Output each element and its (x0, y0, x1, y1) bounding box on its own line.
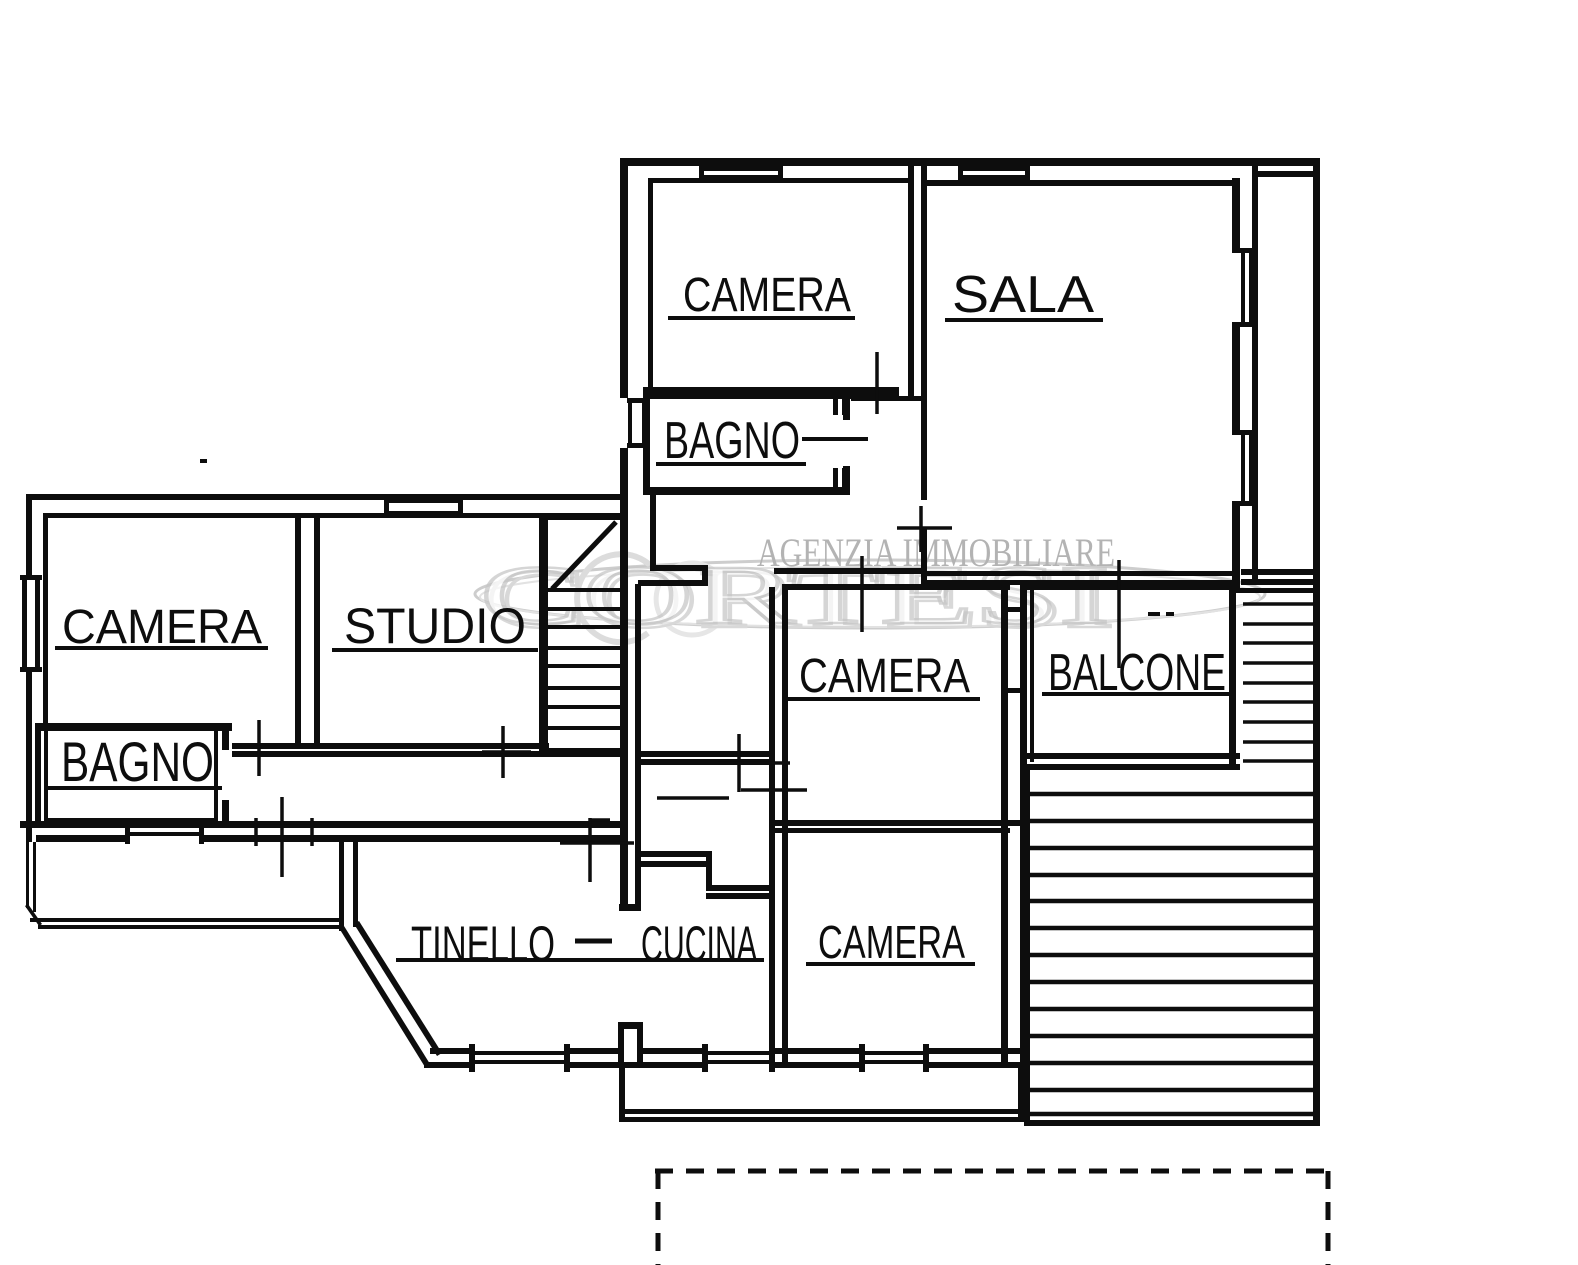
svg-text:CUCINA: CUCINA (641, 916, 757, 972)
svg-text:BAGNO: BAGNO (664, 412, 800, 470)
svg-text:CAMERA: CAMERA (799, 650, 970, 703)
svg-text:CAMERA: CAMERA (818, 916, 965, 968)
svg-text:TINELLO: TINELLO (411, 916, 555, 972)
svg-text:SALA: SALA (952, 266, 1094, 324)
svg-text:STUDIO: STUDIO (344, 598, 526, 654)
svg-text:BAGNO: BAGNO (61, 730, 214, 793)
svg-text:CAMERA: CAMERA (683, 269, 851, 322)
